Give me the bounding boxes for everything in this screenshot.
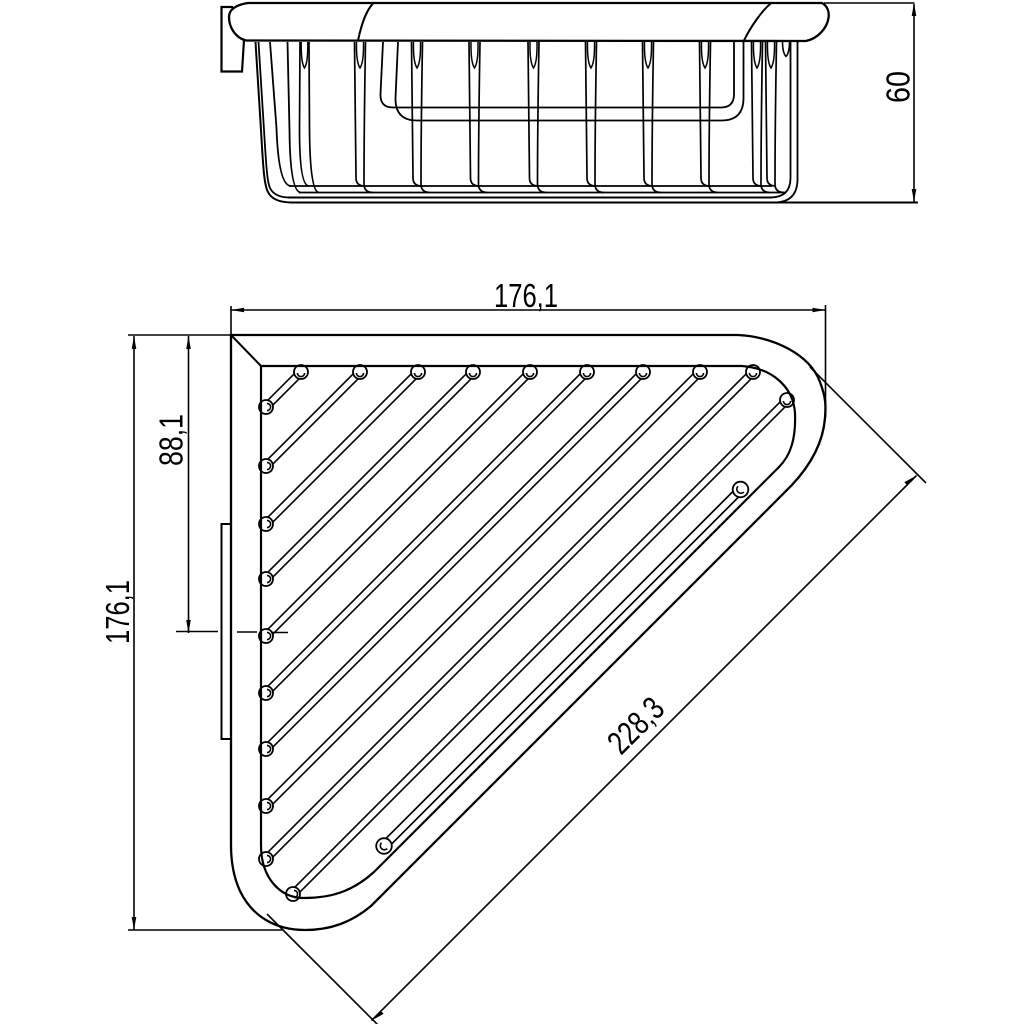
svg-text:88,1: 88,1 xyxy=(153,414,190,466)
svg-text:60: 60 xyxy=(880,71,917,103)
svg-text:176,1: 176,1 xyxy=(494,277,558,314)
svg-text:176,1: 176,1 xyxy=(99,580,136,644)
